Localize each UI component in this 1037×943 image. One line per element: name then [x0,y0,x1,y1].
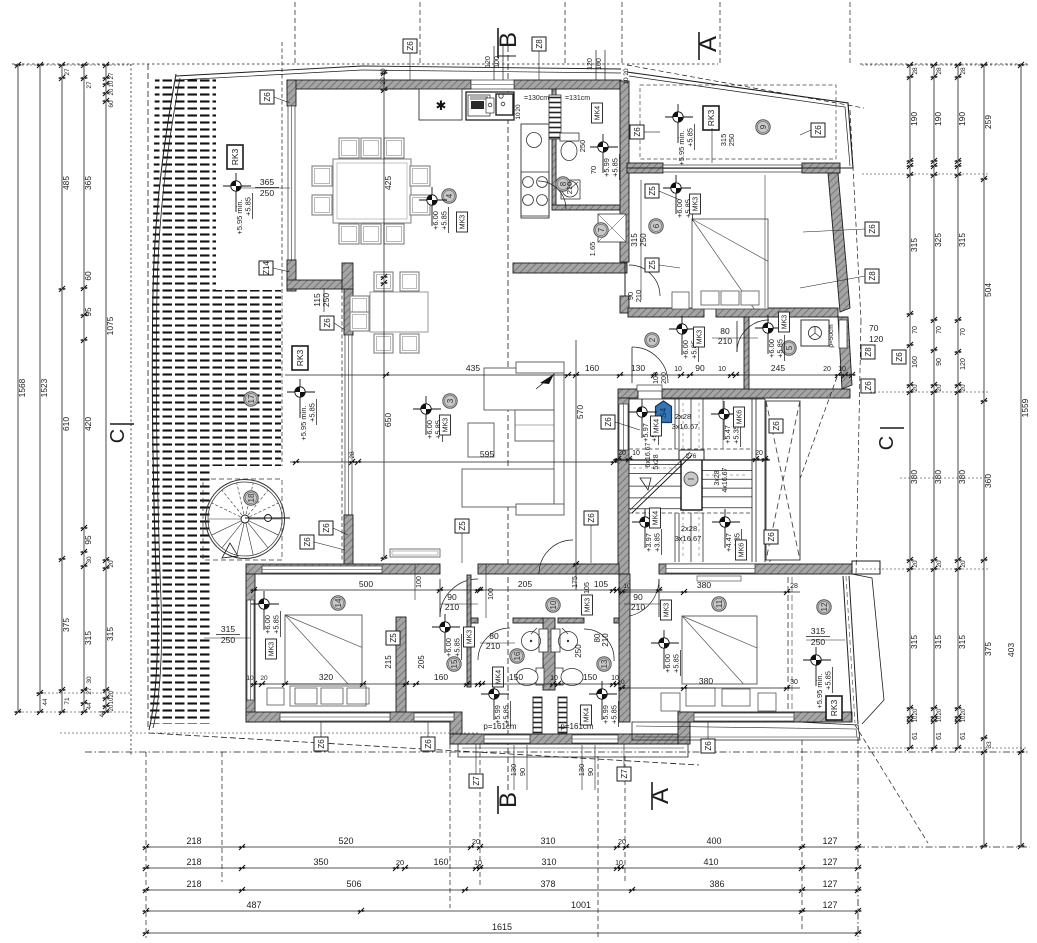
svg-text:386: 386 [709,879,724,889]
svg-text:20: 20 [912,384,919,392]
svg-text:425: 425 [383,176,393,190]
svg-text:20: 20 [618,450,626,457]
svg-text:3x16.67: 3x16.67 [675,534,702,543]
svg-text:Z6: Z6 [772,421,781,431]
svg-text:10: 10 [515,112,522,120]
svg-text:95: 95 [83,535,93,545]
svg-text:30: 30 [86,556,93,564]
svg-text:218: 218 [186,857,201,867]
svg-text:127: 127 [822,879,837,889]
svg-text:20: 20 [380,77,387,85]
svg-text:Z14: Z14 [262,261,271,275]
svg-text:5: 5 [785,345,794,350]
svg-text:MK3: MK3 [697,330,704,345]
svg-text:61: 61 [912,732,919,740]
svg-text:215: 215 [384,655,393,669]
svg-text:27: 27 [64,68,71,76]
svg-text:MK3: MK3 [269,642,276,657]
svg-text:20: 20 [960,560,967,568]
svg-text:1001: 1001 [571,900,591,910]
svg-text:16: 16 [513,651,522,660]
svg-text:90: 90 [586,768,595,776]
svg-text:Z6: Z6 [323,318,332,328]
svg-text:190: 190 [933,112,943,126]
svg-text:13: 13 [600,659,609,668]
svg-text:6x16.67: 6x16.67 [645,442,652,467]
svg-text:33: 33 [986,741,993,749]
svg-text:210: 210 [601,633,610,647]
svg-text:Z6: Z6 [322,523,331,533]
svg-text:A: A [647,788,674,804]
svg-text:MK6: MK6 [737,410,744,425]
svg-text:RK3: RK3 [295,349,305,366]
svg-text:60: 60 [108,100,115,108]
svg-text:10: 10 [109,80,115,87]
svg-text:2x28: 2x28 [675,412,691,421]
svg-text:3x28: 3x28 [714,470,721,485]
svg-text:105: 105 [584,582,591,594]
svg-text:30: 30 [790,679,798,686]
svg-text:487: 487 [246,900,261,910]
svg-text:28: 28 [349,451,356,459]
svg-text:10: 10 [474,860,482,867]
svg-text:20: 20 [936,560,943,568]
svg-text:10: 10 [623,583,631,590]
svg-text:+5.85: +5.85 [453,638,462,657]
svg-text:90: 90 [518,768,527,776]
svg-text:MK4: MK4 [584,708,591,723]
svg-text:20: 20 [260,675,268,682]
svg-text:28: 28 [912,67,919,75]
svg-text:80: 80 [720,326,730,336]
svg-text:315: 315 [105,627,115,641]
svg-text:I: I [687,478,696,480]
svg-text:p=50cm: p=50cm [828,324,835,347]
svg-text:30: 30 [86,676,93,684]
svg-text:1615: 1615 [492,922,512,932]
svg-text:20: 20 [961,708,967,715]
svg-text:Z7: Z7 [620,769,629,779]
svg-text:Z6: Z6 [604,417,613,427]
svg-text:10: 10 [961,715,967,722]
svg-text:27: 27 [86,687,93,695]
svg-text:595: 595 [480,449,494,459]
svg-text:100: 100 [416,576,423,588]
svg-text:90: 90 [447,592,457,602]
svg-text:20: 20 [912,560,919,568]
svg-text:B: B [495,792,522,808]
svg-text:315: 315 [811,626,825,636]
svg-text:320: 320 [319,672,333,682]
svg-text:MK6: MK6 [739,543,746,558]
svg-text:+5.85: +5.85 [272,615,281,634]
svg-text:Z6: Z6 [263,92,272,102]
svg-text:=131cm: =131cm [565,95,590,102]
svg-text:90: 90 [633,592,643,602]
svg-text:MK3: MK3 [467,630,474,645]
svg-text:205: 205 [417,655,426,669]
svg-text:210: 210 [631,602,645,612]
svg-text:C: C [107,429,129,443]
svg-text:28: 28 [936,67,943,75]
svg-text:=130cm: =130cm [524,95,549,102]
svg-text:MK4: MK4 [654,419,661,434]
svg-text:90: 90 [695,363,705,373]
svg-text:70: 70 [589,166,598,174]
svg-text:10: 10 [246,675,254,682]
svg-text:28: 28 [960,67,967,75]
svg-text:MK3: MK3 [460,215,467,230]
svg-text:61: 61 [936,732,943,740]
svg-text:20: 20 [623,68,630,76]
svg-text:Z6: Z6 [895,352,904,362]
svg-text:MK3: MK3 [664,603,671,618]
svg-text:250: 250 [727,134,736,147]
svg-text:Z6: Z6 [587,513,596,523]
svg-text:+5.85: +5.85 [308,403,317,422]
svg-text:100: 100 [488,588,495,600]
svg-text:160: 160 [433,857,448,867]
svg-text:127: 127 [822,900,837,910]
svg-text:130: 130 [577,764,586,777]
svg-text:315: 315 [630,233,639,247]
svg-text:6: 6 [652,223,661,228]
svg-text:250: 250 [321,293,331,307]
svg-text:127: 127 [822,836,837,846]
svg-text:44: 44 [86,702,93,710]
svg-text:520: 520 [338,836,353,846]
svg-text:250: 250 [639,233,648,247]
svg-text:10: 10 [718,366,726,373]
svg-text:61: 61 [960,732,967,740]
svg-text:120: 120 [485,56,492,68]
svg-text:B: B [495,32,522,48]
svg-text:Z6: Z6 [704,741,713,751]
svg-text:10: 10 [913,715,919,722]
svg-text:15: 15 [450,659,459,668]
svg-text:500: 500 [359,579,373,589]
svg-text:325: 325 [933,233,943,247]
svg-text:28: 28 [790,583,798,590]
svg-text:20: 20 [937,708,943,715]
svg-text:100: 100 [596,58,603,70]
svg-text:1075: 1075 [105,316,115,335]
svg-text:Z7: Z7 [472,776,481,786]
svg-text:175: 175 [572,576,579,588]
svg-text:20: 20 [755,450,763,457]
svg-text:Z6: Z6 [317,739,326,749]
svg-text:250: 250 [574,644,583,658]
svg-text:18: 18 [247,493,256,502]
svg-text:10: 10 [623,77,630,85]
svg-text:MK3: MK3 [443,418,450,433]
svg-text:310: 310 [540,836,555,846]
svg-text:200: 200 [661,372,668,384]
svg-text:250: 250 [811,637,825,647]
svg-text:7: 7 [597,227,606,232]
svg-text:20: 20 [108,560,115,568]
svg-text:20: 20 [823,366,831,373]
svg-text:150: 150 [583,672,597,682]
svg-text:20: 20 [109,88,115,95]
svg-text:380: 380 [957,470,967,484]
svg-text:380: 380 [697,580,711,590]
svg-text:365: 365 [83,176,93,190]
svg-text:120: 120 [869,334,883,344]
svg-text:Z5: Z5 [458,521,467,531]
svg-text:410: 410 [703,857,718,867]
svg-text:120: 120 [587,58,594,70]
svg-text:Z6: Z6 [864,381,873,391]
svg-text:315: 315 [957,233,967,247]
svg-text:365: 365 [260,177,274,187]
svg-text:+3.85: +3.85 [653,533,662,552]
svg-text:+5.85: +5.85 [776,339,785,358]
svg-text:378: 378 [540,879,555,889]
svg-text:10: 10 [632,450,640,457]
svg-text:276: 276 [686,453,697,460]
svg-text:150: 150 [509,672,523,682]
svg-text:350: 350 [313,857,328,867]
svg-text:210: 210 [718,336,732,346]
svg-text:1523: 1523 [39,378,49,397]
svg-text:310: 310 [541,857,556,867]
svg-text:4: 4 [445,193,454,198]
svg-text:3x16.67: 3x16.67 [672,422,699,431]
svg-text:100: 100 [653,372,660,384]
svg-text:90: 90 [936,358,943,366]
svg-text:10: 10 [617,679,625,686]
svg-text:315: 315 [909,635,919,649]
svg-text:10: 10 [838,366,846,373]
svg-text:5x28: 5x28 [653,454,660,469]
svg-text:20: 20 [109,690,115,697]
svg-text:12: 12 [820,602,829,611]
svg-text:60: 60 [83,271,93,281]
svg-text:2: 2 [648,337,657,342]
svg-text:218: 218 [186,879,201,889]
svg-text:420: 420 [83,417,93,431]
svg-text:570: 570 [575,405,585,419]
svg-text:70: 70 [960,328,967,336]
svg-text:Z5: Z5 [389,633,398,643]
svg-text:+5.35: +5.35 [732,425,741,444]
svg-text:+5.85: +5.85 [672,654,681,673]
svg-text:20: 20 [960,384,967,392]
svg-text:250: 250 [260,188,274,198]
svg-text:380: 380 [699,676,713,686]
svg-text:Z6: Z6 [868,224,877,234]
svg-text:315: 315 [957,635,967,649]
svg-text:C: C [876,436,898,450]
svg-text:315: 315 [221,624,235,634]
svg-text:20: 20 [396,858,404,867]
svg-text:9: 9 [759,124,768,129]
svg-text:MK3: MK3 [693,197,700,212]
svg-text:245: 245 [771,363,785,373]
svg-text:+5.85: +5.85 [611,158,620,177]
svg-text:160: 160 [912,356,919,368]
svg-text:105: 105 [594,579,608,589]
svg-text:44: 44 [42,698,49,706]
svg-text:315: 315 [83,631,93,645]
svg-text:RK3: RK3 [230,148,240,165]
svg-text:Z8: Z8 [864,347,873,357]
svg-text:2x28: 2x28 [681,524,697,533]
svg-text:485: 485 [61,176,71,190]
svg-text:MK3: MK3 [782,315,789,330]
svg-text:1568: 1568 [17,378,27,397]
svg-text:11: 11 [715,599,724,608]
svg-text:4x16.67: 4x16.67 [722,467,729,492]
svg-text:218: 218 [186,836,201,846]
svg-text:MK4: MK4 [595,106,602,121]
svg-text:70: 70 [936,326,943,334]
svg-text:315: 315 [933,635,943,649]
svg-text:17: 17 [247,394,256,403]
svg-text:190: 190 [957,112,967,126]
svg-text:360: 360 [983,474,993,488]
svg-text:380: 380 [933,470,943,484]
svg-text:20: 20 [472,837,480,846]
svg-text:400: 400 [706,836,721,846]
svg-text:Z6: Z6 [767,532,776,542]
svg-text:250: 250 [578,140,587,153]
svg-text:Z6: Z6 [303,537,312,547]
svg-text:Z5: Z5 [648,186,657,196]
svg-text:250: 250 [221,635,235,645]
svg-text:127: 127 [822,857,837,867]
svg-text:375: 375 [983,642,993,656]
svg-text:20: 20 [515,104,522,112]
svg-text:100: 100 [494,56,501,68]
svg-text:71: 71 [64,697,71,705]
svg-text:210: 210 [445,602,459,612]
svg-text:205: 205 [518,579,532,589]
svg-text:10: 10 [937,715,943,722]
svg-text:95: 95 [83,307,93,317]
svg-text:+5.85: +5.85 [440,211,449,230]
svg-text:Z8: Z8 [535,39,544,49]
svg-text:1559: 1559 [1020,398,1030,417]
svg-text:70: 70 [869,323,879,333]
svg-text:130: 130 [631,363,645,373]
svg-text:20: 20 [618,837,626,846]
svg-text:315: 315 [909,238,919,252]
svg-text:10: 10 [109,697,115,704]
svg-text:160: 160 [585,363,599,373]
svg-text:Z6: Z6 [814,125,823,135]
svg-text:190: 190 [909,112,919,126]
svg-text:380: 380 [909,470,919,484]
svg-text:160: 160 [434,672,448,682]
svg-text:1.65: 1.65 [588,242,597,257]
svg-text:Z5: Z5 [648,260,657,270]
svg-text:Z8: Z8 [868,271,877,281]
svg-text:10: 10 [674,366,682,373]
svg-text:Z6: Z6 [633,127,642,137]
svg-text:10: 10 [549,600,558,609]
svg-text:650: 650 [383,413,393,427]
svg-text:10: 10 [615,860,623,867]
svg-text:10: 10 [550,675,558,682]
svg-text:Z6: Z6 [424,739,433,749]
svg-text:RK3: RK3 [706,109,716,126]
svg-text:506: 506 [346,879,361,889]
svg-text:80: 80 [489,631,499,641]
svg-text:27: 27 [86,81,93,89]
svg-text:✱: ✱ [436,98,447,113]
svg-text:120: 120 [960,358,967,370]
svg-text:210: 210 [634,290,643,303]
svg-text:403: 403 [1006,643,1016,657]
svg-text:14: 14 [334,598,343,607]
svg-text:259: 259 [983,115,993,129]
svg-text:210: 210 [486,641,500,651]
svg-text:RK3: RK3 [829,699,839,716]
svg-text:+5.85: +5.85 [610,705,619,724]
svg-text:70: 70 [912,326,919,334]
svg-text:MK4: MK4 [653,511,660,526]
svg-text:Z6: Z6 [406,41,415,51]
svg-text:375: 375 [61,618,71,632]
svg-text:3: 3 [446,398,455,403]
svg-text:20: 20 [109,704,115,711]
svg-text:504: 504 [983,283,993,297]
svg-text:10: 10 [380,68,387,76]
svg-text:+5.85: +5.85 [502,705,511,724]
svg-text:+5.85: +5.85 [824,671,833,690]
svg-text:610: 610 [61,417,71,431]
svg-text:+5.85: +5.85 [686,128,695,147]
svg-text:20: 20 [936,384,943,392]
svg-text:MK3: MK3 [585,598,592,613]
svg-text:20: 20 [913,708,919,715]
svg-text:MK4: MK4 [496,670,503,685]
svg-text:27: 27 [109,72,115,79]
svg-text:435: 435 [466,363,480,373]
svg-text:+5.85: +5.85 [244,197,253,216]
svg-text:44: 44 [100,710,106,717]
svg-text:210: 210 [565,182,574,195]
svg-text:130: 130 [509,764,518,777]
